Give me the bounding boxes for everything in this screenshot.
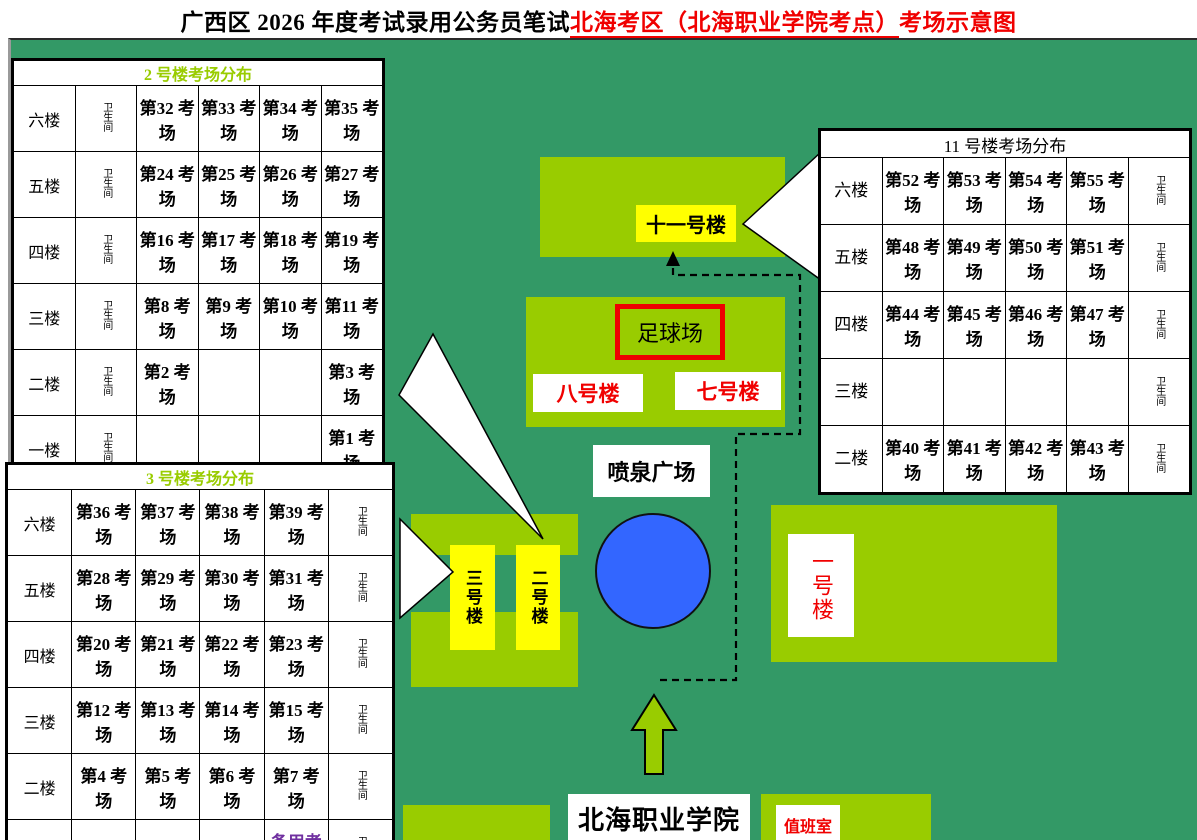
room-cell: 第5 考场 — [136, 754, 200, 820]
floor-label: 四楼 — [14, 218, 76, 284]
room-cell: 第34 考场 — [260, 86, 322, 152]
room-cell: 第20 考场 — [72, 622, 136, 688]
table-header: 3 号楼考场分布 — [8, 465, 393, 490]
distribution-table: 3 号楼考场分布六楼第36 考场第37 考场第38 考场第39 考场卫生间五楼第… — [7, 464, 393, 840]
room-cell: 第44 考场 — [882, 292, 944, 359]
room-cell: 第18 考场 — [260, 218, 322, 284]
room-cell — [198, 350, 260, 416]
floor-label: 三楼 — [8, 688, 72, 754]
room-cell: 第42 考场 — [1005, 426, 1067, 493]
college-name-text: 北海职业学院 — [578, 800, 740, 837]
room-cell: 第11 考场 — [321, 284, 383, 350]
room-cell — [882, 359, 944, 426]
entrance-arrow-icon — [632, 695, 676, 774]
room-cell: 第49 考场 — [944, 225, 1006, 292]
building-3-text: 三号楼 — [460, 569, 485, 626]
room-cell: 第23 考场 — [264, 622, 328, 688]
toilet-label: 卫生间 — [1128, 359, 1190, 426]
room-cell: 第26 考场 — [260, 152, 322, 218]
room-cell: 第43 考场 — [1067, 426, 1129, 493]
page-title: 广西区 2026 年度考试录用公务员笔试北海考区（北海职业学院考点）考场示意图 — [0, 3, 1197, 37]
toilet-label: 卫生间 — [75, 152, 137, 218]
table-header: 2 号楼考场分布 — [14, 61, 383, 86]
room-cell: 第47 考场 — [1067, 292, 1129, 359]
floor-label: 三楼 — [821, 359, 883, 426]
title-black-part: 广西区 2026 年度考试录用公务员笔试 — [181, 10, 571, 35]
room-cell: 第19 考场 — [321, 218, 383, 284]
toilet-label: 卫生间 — [1128, 292, 1190, 359]
toilet-label: 卫生间 — [75, 86, 137, 152]
floor-label: 三楼 — [14, 284, 76, 350]
room-cell: 第35 考场 — [321, 86, 383, 152]
room-cell: 第25 考场 — [198, 152, 260, 218]
distribution-table: 2 号楼考场分布六楼卫生间第32 考场第33 考场第34 考场第35 考场五楼卫… — [13, 60, 383, 482]
room-cell: 第21 考场 — [136, 622, 200, 688]
building-2-distribution-table: 2 号楼考场分布六楼卫生间第32 考场第33 考场第34 考场第35 考场五楼卫… — [11, 58, 385, 484]
room-cell: 第53 考场 — [944, 158, 1006, 225]
building-1-label: 一号楼 — [788, 534, 854, 637]
toilet-label: 卫生间 — [328, 556, 392, 622]
room-cell: 第39 考场 — [264, 490, 328, 556]
building-2-text: 二号楼 — [526, 569, 551, 626]
room-cell: 第27 考场 — [321, 152, 383, 218]
room-cell: 第46 考场 — [1005, 292, 1067, 359]
toilet-label: 卫生间 — [328, 688, 392, 754]
room-cell: 第29 考场 — [136, 556, 200, 622]
room-cell: 第37 考场 — [136, 490, 200, 556]
room-cell: 第2 考场 — [137, 350, 199, 416]
building-8-label: 八号楼 — [533, 374, 643, 412]
room-cell: 第8 考场 — [137, 284, 199, 350]
room-cell: 备用考场 — [264, 820, 328, 840]
room-cell: 第15 考场 — [264, 688, 328, 754]
floor-label: 五楼 — [14, 152, 76, 218]
toilet-label: 卫生间 — [328, 622, 392, 688]
room-cell — [1067, 359, 1129, 426]
room-cell: 第3 考场 — [321, 350, 383, 416]
floor-label: 四楼 — [8, 622, 72, 688]
room-cell: 第10 考场 — [260, 284, 322, 350]
floor-label: 二楼 — [8, 754, 72, 820]
room-cell: 第55 考场 — [1067, 158, 1129, 225]
room-cell: 第9 考场 — [198, 284, 260, 350]
fountain-plaza-text: 喷泉广场 — [607, 455, 695, 487]
football-field-label: 足球场 — [637, 316, 703, 348]
building-3-distribution-table: 3 号楼考场分布六楼第36 考场第37 考场第38 考场第39 考场卫生间五楼第… — [5, 462, 395, 840]
room-cell: 第16 考场 — [137, 218, 199, 284]
floor-label: 二楼 — [821, 426, 883, 493]
floor-label: 四楼 — [821, 292, 883, 359]
building-11-label: 十一号楼 — [636, 205, 736, 242]
building-8-text: 八号楼 — [557, 378, 620, 408]
room-cell: 第30 考场 — [200, 556, 264, 622]
floor-label: 二楼 — [14, 350, 76, 416]
toilet-label: 卫生间 — [1128, 225, 1190, 292]
building-1-text: 一号楼 — [805, 550, 837, 622]
room-cell: 第13 考场 — [136, 688, 200, 754]
building-3-label: 三号楼 — [450, 545, 495, 650]
table-header: 11 号楼考场分布 — [821, 131, 1190, 158]
room-cell: 第6 考场 — [200, 754, 264, 820]
room-cell: 主考室 — [72, 820, 136, 840]
football-field-box: 足球场 — [615, 304, 725, 360]
toilet-label: 卫生间 — [328, 820, 392, 840]
room-cell: 第38 考场 — [200, 490, 264, 556]
room-cell: 第54 考场 — [1005, 158, 1067, 225]
room-cell — [260, 350, 322, 416]
distribution-table: 11 号楼考场分布六楼第52 考场第53 考场第54 考场第55 考场卫生间五楼… — [820, 130, 1190, 493]
room-cell: 第17 考场 — [198, 218, 260, 284]
room-cell: 第41 考场 — [944, 426, 1006, 493]
college-name-label: 北海职业学院 — [568, 794, 750, 840]
building-7-label: 七号楼 — [675, 372, 781, 410]
room-cell: 第52 考场 — [882, 158, 944, 225]
room-cell: 第12 考场 — [72, 688, 136, 754]
fountain-plaza-label: 喷泉广场 — [593, 445, 710, 497]
room-cell: 第31 考场 — [264, 556, 328, 622]
toilet-label: 卫生间 — [75, 350, 137, 416]
floor-label: 五楼 — [821, 225, 883, 292]
exam-venue-map-page: { "title": { "part_black": "广西区 2026 年度考… — [0, 0, 1197, 840]
room-cell: 第50 考场 — [1005, 225, 1067, 292]
room-cell: 第28 考场 — [72, 556, 136, 622]
fountain-circle — [595, 513, 711, 629]
building-2-label: 二号楼 — [516, 545, 560, 650]
room-cell: 第4 考场 — [72, 754, 136, 820]
room-cell: 第7 考场 — [264, 754, 328, 820]
floor-label: 五楼 — [8, 556, 72, 622]
building-7-text: 七号楼 — [697, 376, 760, 406]
room-cell: 第48 考场 — [882, 225, 944, 292]
gate-side-building — [403, 805, 550, 840]
room-cell: 第32 考场 — [137, 86, 199, 152]
building-11-distribution-table: 11 号楼考场分布六楼第52 考场第53 考场第54 考场第55 考场卫生间五楼… — [818, 128, 1192, 495]
duty-room-label: 值班室 — [776, 805, 840, 840]
room-cell — [136, 820, 200, 840]
floor-label: 一楼 — [8, 820, 72, 840]
toilet-label: 卫生间 — [328, 754, 392, 820]
building-11-text: 十一号楼 — [646, 209, 726, 238]
room-cell — [200, 820, 264, 840]
room-cell — [944, 359, 1006, 426]
room-cell: 第45 考场 — [944, 292, 1006, 359]
room-cell — [1005, 359, 1067, 426]
room-cell: 第24 考场 — [137, 152, 199, 218]
title-red-underlined-part: 北海考区（北海职业学院考点） — [570, 10, 899, 38]
room-cell: 第33 考场 — [198, 86, 260, 152]
toilet-label: 卫生间 — [75, 218, 137, 284]
floor-label: 六楼 — [821, 158, 883, 225]
room-cell: 第14 考场 — [200, 688, 264, 754]
title-red-part: 考场示意图 — [899, 10, 1017, 35]
duty-room-text: 值班室 — [784, 813, 832, 837]
toilet-label: 卫生间 — [1128, 158, 1190, 225]
room-cell: 第36 考场 — [72, 490, 136, 556]
toilet-label: 卫生间 — [1128, 426, 1190, 493]
floor-label: 六楼 — [8, 490, 72, 556]
room-cell: 第40 考场 — [882, 426, 944, 493]
room-cell: 第51 考场 — [1067, 225, 1129, 292]
callout-wedge-table2 — [399, 334, 543, 539]
floor-label: 六楼 — [14, 86, 76, 152]
toilet-label: 卫生间 — [75, 284, 137, 350]
toilet-label: 卫生间 — [328, 490, 392, 556]
room-cell: 第22 考场 — [200, 622, 264, 688]
